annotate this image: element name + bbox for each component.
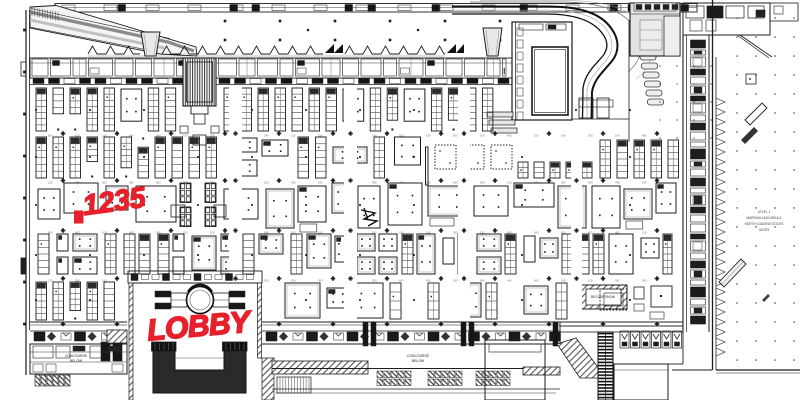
svg-text:205: 205	[264, 181, 269, 185]
svg-text:145: 145	[615, 134, 620, 138]
svg-text:180: 180	[561, 134, 566, 138]
svg-text:BELOW: BELOW	[412, 359, 425, 363]
svg-text:300: 300	[318, 279, 323, 283]
svg-text:620: 620	[210, 231, 215, 235]
svg-text:680: 680	[102, 181, 107, 185]
svg-text:MARSHALLING AREA &: MARSHALLING AREA &	[746, 216, 782, 220]
svg-text:215: 215	[507, 181, 512, 185]
svg-text:485: 485	[642, 134, 647, 138]
svg-text:200: 200	[453, 279, 458, 283]
svg-text:245: 245	[426, 279, 431, 283]
svg-text:285: 285	[426, 181, 431, 185]
svg-text:285: 285	[453, 231, 458, 235]
svg-text:260: 260	[372, 279, 377, 283]
svg-text:300: 300	[588, 134, 593, 138]
svg-text:280: 280	[561, 181, 566, 185]
svg-text:GATES: GATES	[759, 228, 770, 232]
svg-text:545: 545	[480, 181, 485, 185]
svg-text:485: 485	[372, 181, 377, 185]
svg-text:665: 665	[507, 134, 512, 138]
svg-text:110: 110	[642, 231, 647, 235]
svg-text:245: 245	[264, 134, 269, 138]
svg-text:145: 145	[561, 279, 566, 283]
svg-text:640: 640	[588, 181, 593, 185]
svg-text:445: 445	[615, 181, 620, 185]
svg-text:505: 505	[453, 134, 458, 138]
svg-text:240: 240	[642, 279, 647, 283]
svg-text:NORTH LOADING DOCKS: NORTH LOADING DOCKS	[745, 222, 784, 226]
svg-text:CONCOURSE: CONCOURSE	[65, 354, 88, 358]
svg-text:LEVEL 1: LEVEL 1	[758, 210, 771, 214]
svg-text:225: 225	[48, 181, 53, 185]
svg-text:520: 520	[642, 181, 647, 185]
svg-text:180: 180	[264, 279, 269, 283]
svg-text:420: 420	[291, 181, 296, 185]
svg-text:200: 200	[291, 279, 296, 283]
svg-text:580: 580	[156, 181, 161, 185]
svg-text:BELOW: BELOW	[70, 359, 83, 363]
svg-text:665: 665	[453, 181, 458, 185]
svg-text:100: 100	[183, 134, 188, 138]
svg-text:265: 265	[318, 181, 323, 185]
svg-text:510: 510	[534, 134, 539, 138]
svg-text:120: 120	[48, 279, 53, 283]
svg-text:165: 165	[480, 134, 485, 138]
svg-text:CONCOURSE: CONCOURSE	[407, 354, 430, 358]
svg-text:110: 110	[588, 279, 593, 283]
svg-text:115: 115	[291, 134, 296, 138]
svg-text:260: 260	[534, 231, 539, 235]
svg-text:265: 265	[615, 279, 620, 283]
svg-text:445: 445	[507, 279, 512, 283]
svg-text:600: 600	[48, 134, 53, 138]
svg-text:665: 665	[399, 279, 404, 283]
svg-text:BIG BAR SHOW: BIG BAR SHOW	[591, 295, 615, 299]
svg-text:600: 600	[534, 279, 539, 283]
svg-text:185: 185	[426, 134, 431, 138]
svg-text:645: 645	[480, 279, 485, 283]
